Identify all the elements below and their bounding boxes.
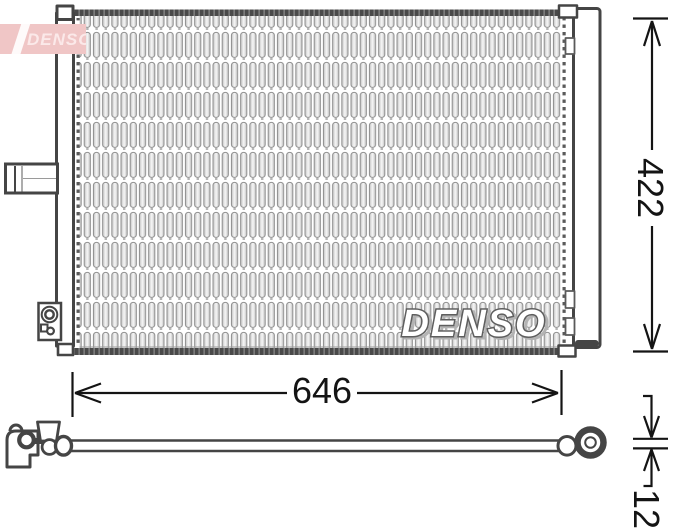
bottom-side-plate: [73, 348, 563, 355]
condenser-diagram: DENSO DENSO: [0, 0, 681, 532]
dimension-pipe-arrows: [633, 396, 668, 486]
left-fin-serration: [77, 18, 80, 346]
right-tank-foot: [559, 346, 576, 357]
bracket-eyelet: [19, 433, 34, 448]
denso-logo-text: DENSO: [27, 30, 86, 50]
top-side-plate: [73, 10, 562, 17]
dimension-height-label: 422: [632, 158, 668, 218]
inlet-port: [6, 164, 58, 193]
tank-clip-tab: [566, 318, 575, 335]
technical-drawing-canvas: DENSO DENSO: [0, 0, 681, 532]
service-valve: [39, 303, 62, 340]
receiver-pipe: [7, 422, 604, 467]
denso-watermark: DENSO: [401, 303, 546, 345]
tank-clip-tab: [566, 291, 575, 308]
dimension-pipe-label: 12: [628, 489, 664, 529]
tank-clip-tab: [566, 38, 575, 54]
denso-logo-banner: DENSO: [0, 24, 86, 54]
condenser-core: [80, 16, 562, 349]
right-tank-top-fitting: [559, 6, 577, 18]
dimension-width-label: 646: [292, 373, 352, 409]
valve-port-dot: [47, 328, 54, 335]
pipe-block-fitting: [38, 422, 60, 441]
pipe-end-left: [56, 437, 72, 456]
pipe-end-right: [558, 437, 576, 456]
left-tank-top-fitting: [57, 6, 73, 20]
left-tank-foot: [58, 344, 73, 355]
